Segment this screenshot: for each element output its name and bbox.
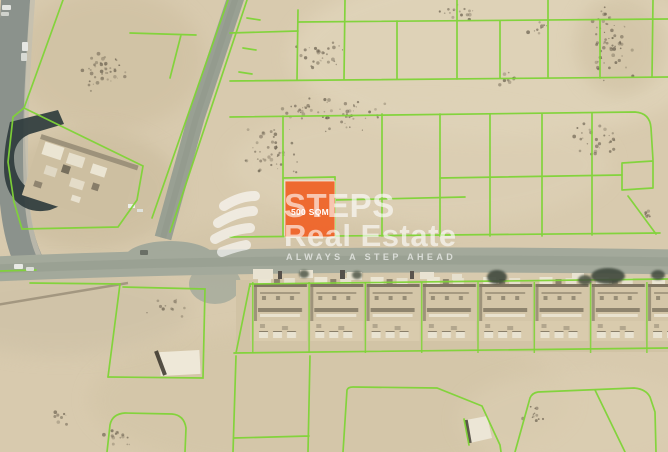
listing-map-image[interactable]: 500 SQM STEPS Real Estate ALWAYS A STEP … [0, 0, 668, 452]
satellite-map: 500 SQM STEPS Real Estate ALWAYS A STEP … [0, 0, 668, 452]
car [2, 5, 11, 10]
parked-car [137, 209, 143, 212]
car [21, 53, 27, 61]
tree [487, 270, 507, 284]
roadside-shed [253, 269, 273, 279]
car [26, 267, 34, 271]
tree [591, 268, 625, 284]
car [140, 250, 148, 255]
watermark-brand-line2: Real Estate [284, 218, 457, 253]
car [14, 264, 23, 269]
car [1, 12, 9, 16]
car [22, 42, 28, 51]
watermark-tagline: ALWAYS A STEP AHEAD [286, 252, 456, 262]
